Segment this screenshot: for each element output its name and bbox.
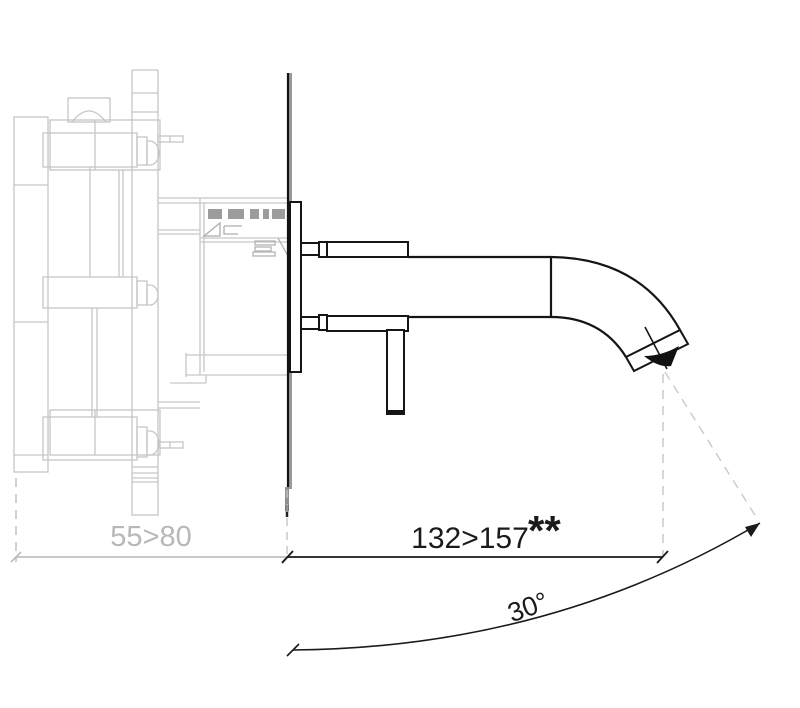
wall-depth-label: 55>80 [110, 521, 191, 553]
spout-bend-inner [551, 317, 626, 357]
valve-top-cap [68, 98, 110, 122]
angle-arc-arrowhead [745, 523, 760, 537]
mounting-box [158, 198, 288, 408]
mixer-front-assembly [290, 202, 688, 413]
escutcheon-plate [290, 202, 301, 372]
spout-reach-label: 132>157 [411, 522, 529, 555]
mounting-rail-markings [204, 209, 288, 256]
installation-diagram: 55>80 132>157 ** 30° [0, 0, 800, 708]
valve-internal-pipes [90, 167, 123, 417]
spout-collar-bottom [301, 315, 408, 331]
angle-label: 30° [504, 586, 553, 628]
valve-cartridge-middle [43, 277, 158, 308]
mixer-installation-drawing: 55>80 132>157 ** 30° [0, 0, 800, 708]
aerator-tip [626, 327, 688, 371]
valve-cartridge-top [43, 120, 183, 170]
valve-bottom-stem [132, 467, 158, 515]
spout-tube [408, 257, 680, 357]
dimension-wall-depth [11, 552, 292, 562]
lever-handle [386, 330, 405, 413]
spout-reach-note: ** [528, 507, 561, 554]
valve-cartridge-bottom [43, 410, 183, 460]
concealed-valve-body [14, 70, 288, 515]
valve-riser-pipe [132, 70, 158, 467]
projection-line-angled [665, 372, 758, 520]
spout-collar-top [301, 242, 408, 257]
